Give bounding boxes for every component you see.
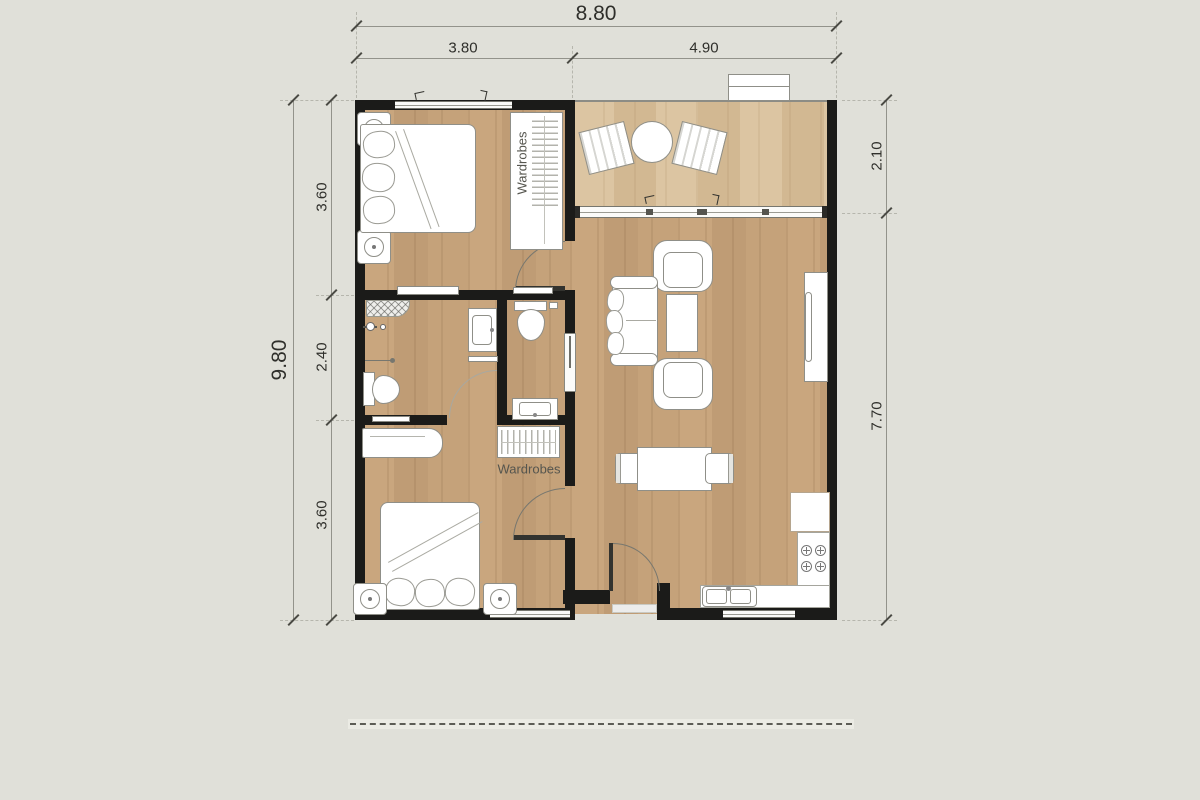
dim-top-seg2: 4.90 [689, 40, 718, 57]
bedroom1-door-track [513, 287, 553, 294]
dim-right-seg1: 2.10 [869, 141, 886, 170]
ac-unit-line [729, 86, 789, 87]
stove-burner [801, 545, 812, 556]
bedroom1-bench [397, 286, 459, 295]
stove-burner [815, 561, 826, 572]
entry-wall-left-foot [563, 590, 610, 604]
entry-threshold [612, 604, 657, 613]
dim-left-overall-line [293, 100, 294, 620]
dim-left-seg3: 3.60 [314, 500, 331, 529]
floor-plan: Wardrobes [0, 0, 1200, 800]
lamp-dot [372, 245, 376, 249]
bedroom2-door-leaf [514, 535, 565, 540]
wardrobe1-rail [544, 116, 545, 244]
shower-knob [380, 324, 386, 330]
ac-unit [728, 74, 790, 101]
extension-line [842, 213, 897, 214]
coffee-table [666, 294, 698, 352]
bathroom2-sliding-leaf [569, 336, 571, 368]
sliding-door-tick [762, 209, 769, 215]
fridge [790, 492, 830, 532]
extension-line [316, 295, 354, 296]
tv [805, 292, 812, 362]
dim-left-overall: 9.80 [268, 340, 292, 381]
dim-right-seg2: 7.70 [869, 401, 886, 430]
extension-line [572, 46, 573, 98]
dim-top-overall-line [356, 26, 836, 27]
shower-area [366, 300, 410, 317]
shower-knob [366, 322, 375, 331]
wardrobe2-rail [501, 442, 556, 443]
sofa-armrest-top [610, 276, 658, 289]
wardrobe1-label: Wardrobes [515, 131, 530, 194]
wall-bath-divider [497, 290, 507, 415]
dim-left-seg-line [331, 100, 332, 620]
sliding-door-tick [697, 209, 707, 215]
dim-top-overall: 8.80 [576, 2, 617, 26]
divider-knob [390, 358, 395, 363]
vanity-sink1-basin [472, 315, 492, 345]
dim-right-seg-line [886, 100, 887, 620]
dining-chair-left-back [616, 454, 621, 483]
shower-glass-divider [365, 360, 392, 361]
wardrobe1-hangers [532, 116, 558, 206]
sofa-back-cushion [605, 309, 624, 334]
sliding-door-cap-left [575, 206, 580, 218]
sofa-seat-line [626, 320, 656, 321]
extension-line [316, 420, 354, 421]
lamp-dot [498, 597, 502, 601]
towel-rail [372, 416, 410, 422]
wall-spine-a [565, 100, 575, 241]
bathroom1-door-slider [468, 356, 498, 362]
bedroom1-window [395, 101, 512, 109]
entry-door-leaf [609, 543, 613, 591]
vanity-sink1-faucet [490, 328, 494, 332]
sink-basin-right [730, 589, 751, 604]
sink-basin-left [706, 589, 727, 604]
stove-burner [815, 545, 826, 556]
armchair-top-seat [663, 252, 703, 288]
wall-spine-c [565, 392, 575, 486]
lamp-dot [368, 597, 372, 601]
flush-plate [549, 302, 558, 309]
wardrobe2-label: Wardrobes [497, 462, 560, 477]
stove-burner [801, 561, 812, 572]
section-dashed-line [350, 723, 852, 725]
sink-faucet [726, 586, 731, 591]
kitchen-window [723, 610, 795, 618]
sliding-door-tick [646, 209, 653, 215]
balcony-round-table [631, 121, 673, 163]
dim-left-seg1: 3.60 [314, 182, 331, 211]
dining-chair-right-back [728, 454, 733, 483]
wall-spine-b [565, 291, 575, 333]
bedroom2-dresser [362, 428, 443, 458]
extension-line [842, 100, 897, 101]
dining-table [637, 447, 712, 491]
extension-line [842, 620, 897, 621]
window-swing-mark [414, 91, 425, 100]
sliding-door-cap-right [822, 206, 827, 218]
stove [800, 543, 828, 580]
armchair-bottom-seat [663, 362, 703, 398]
dim-left-seg2: 2.40 [314, 342, 331, 371]
dim-top-seg-line [356, 58, 836, 59]
bedroom2-dresser-line [370, 436, 425, 437]
dim-top-seg1: 3.80 [448, 40, 477, 57]
vanity-sink2-faucet [533, 413, 537, 417]
